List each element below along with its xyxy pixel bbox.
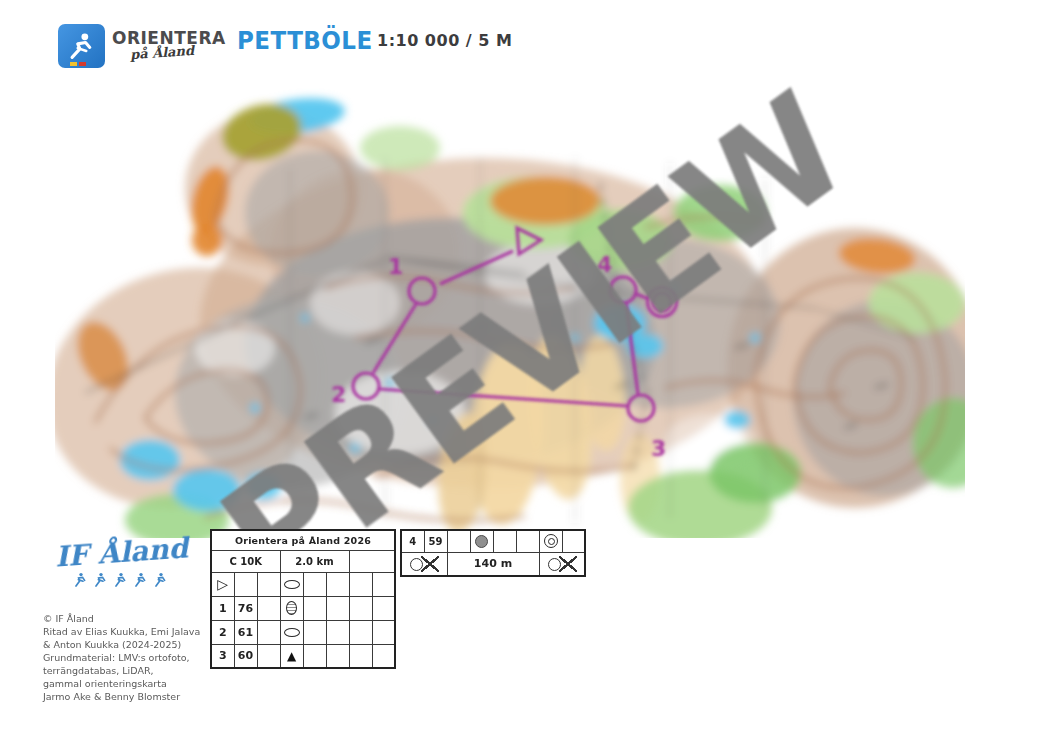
feature-symbol — [284, 628, 300, 637]
course-length: 2.0 km — [280, 550, 349, 572]
control-row: 1 76 — [211, 596, 395, 620]
runner-icon — [65, 29, 99, 63]
credits-line: Jarmo Ake & Benny Blomster — [43, 690, 200, 703]
logo-flag-marks — [70, 62, 86, 66]
course-climb — [349, 550, 395, 572]
finish-symbol — [547, 556, 577, 572]
start-symbol — [217, 577, 228, 591]
control-1-label: 1 — [388, 254, 403, 279]
control-number: 2 — [211, 620, 234, 644]
credits-line: & Anton Kuukka (2024-2025) — [43, 638, 200, 651]
club-runners-icons — [75, 572, 175, 593]
feature-symbol — [284, 580, 300, 589]
control-3-label: 3 — [651, 436, 666, 461]
control-row: 4 59 — [401, 530, 585, 552]
feature-symbol — [544, 534, 558, 548]
map-credits: © IF Åland Ritad av Elias Kuukka, Emi Ja… — [43, 612, 200, 703]
feature-symbol — [286, 601, 297, 615]
start-row — [211, 572, 395, 596]
control-code: 59 — [424, 530, 447, 552]
control-code: 76 — [234, 596, 257, 620]
control-row: 3 60 — [211, 644, 395, 668]
finish-distance: 140 m — [447, 552, 539, 576]
control-description-card-right: 4 59 140 m — [400, 529, 586, 577]
control-number: 1 — [211, 596, 234, 620]
credits-line: Ritad av Elias Kuukka, Emi Jalava — [43, 625, 200, 638]
feature-symbol — [475, 535, 488, 548]
org-subtitle: på Åland — [130, 43, 195, 62]
control-number: 4 — [401, 530, 424, 552]
credits-line: Grundmaterial: LMV:s ortofoto, — [43, 651, 200, 664]
control-2-label: 2 — [331, 382, 346, 407]
finish-row: 140 m — [401, 552, 585, 576]
course-map: 1 2 3 4 PREVIEW — [55, 88, 965, 538]
feature-symbol — [287, 650, 296, 662]
map-preview-page: ORIENTERA på Åland PETTBÖLE 1:10 000 / 5… — [0, 0, 1061, 750]
control-description-card: Orientera på Åland 2026 C 10K 2.0 km 1 7… — [210, 529, 396, 669]
control-4-label: 4 — [597, 252, 612, 277]
control-code: 60 — [234, 644, 257, 668]
control-number: 3 — [211, 644, 234, 668]
map-title: PETTBÖLE — [237, 26, 373, 55]
control-row: 2 61 — [211, 620, 395, 644]
map-scale: 1:10 000 / 5 M — [377, 31, 512, 50]
credits-line: gammal orienteringskarta — [43, 677, 200, 690]
control-code: 61 — [234, 620, 257, 644]
credits-line: terrängdatabas, LiDAR, — [43, 664, 200, 677]
course-class: C 10K — [211, 550, 280, 572]
orientera-logo — [58, 24, 105, 68]
credits-line: © IF Åland — [43, 612, 200, 625]
finish-symbol — [409, 556, 439, 572]
orienteering-map-graphic: 1 2 3 4 — [55, 88, 965, 538]
card-title: Orientera på Åland 2026 — [211, 530, 395, 550]
